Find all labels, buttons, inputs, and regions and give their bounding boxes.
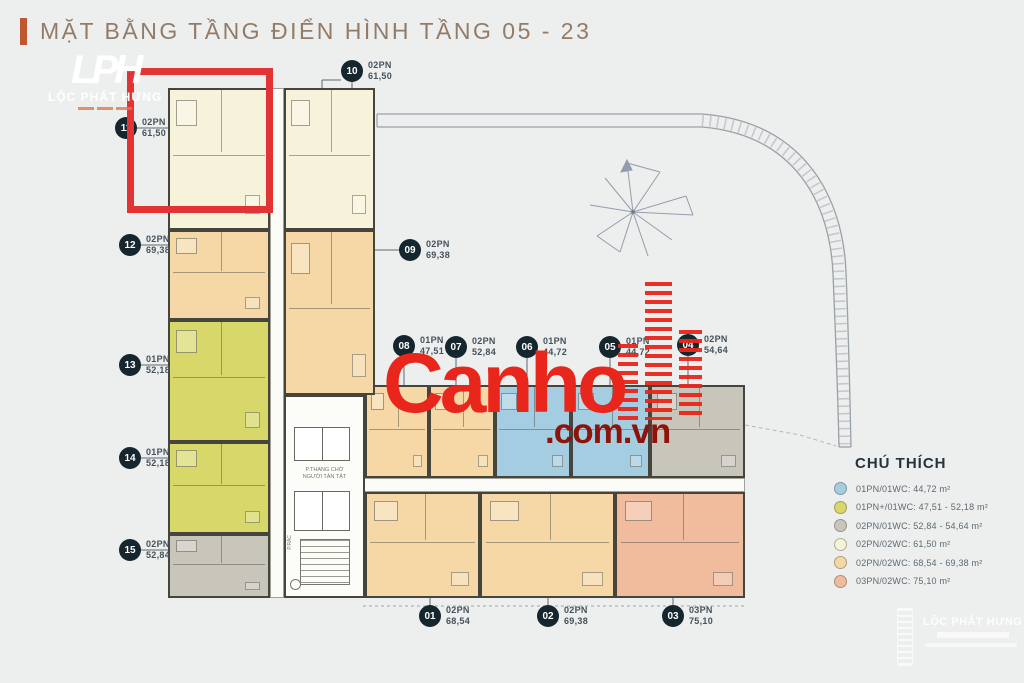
page-title: MẶT BẰNG TẦNG ĐIỂN HÌNH TẦNG 05 - 23 [40, 18, 591, 45]
unit-number-badge: 01 [419, 605, 441, 627]
unit-area: 69,38 [426, 250, 450, 261]
legend-item: 02PN/02WC: 61,50 m² [834, 538, 988, 551]
unit-label-01: 0102PN68,54 [419, 605, 470, 627]
legend-item: 02PN/02WC: 68,54 - 69,38 m² [834, 556, 988, 569]
unit-area: 69,38 [146, 245, 170, 256]
legend-swatch [834, 556, 847, 569]
legend-label: 02PN/02WC: 61,50 m² [856, 539, 950, 549]
unit-type: 01PN [146, 447, 170, 458]
legend: CHÚ THÍCH 01PN/01WC: 44,72 m²01PN+/01WC:… [834, 455, 988, 593]
legend-label: 02PN/02WC: 68,54 - 69,38 m² [856, 558, 982, 568]
unit-area: 75,10 [689, 616, 713, 627]
unit-type: 01PN [146, 354, 170, 365]
unit-number-badge: 03 [662, 605, 684, 627]
brand-subtext-bar [937, 632, 1009, 638]
legend-swatch [834, 538, 847, 551]
unit-label-02: 0202PN69,38 [537, 605, 588, 627]
compass-icon [590, 160, 693, 256]
canho-watermark-suffix: .com.vn [545, 412, 670, 452]
brand-monogram-icon: LPH [48, 52, 162, 88]
legend-label: 03PN/02WC: 75,10 m² [856, 576, 950, 586]
unit-area: 69,38 [564, 616, 588, 627]
unit-type: 02PN [146, 234, 170, 245]
unit-label-10: 1002PN61,50 [341, 60, 392, 82]
unit-number-badge: 10 [341, 60, 363, 82]
canho-building-icon [645, 282, 672, 420]
unit-label-15: 1502PN52,84 [119, 539, 170, 561]
unit-label-09: 0902PN69,38 [399, 239, 450, 261]
canho-building-icon [618, 344, 638, 420]
unit-type: 02PN [146, 539, 170, 550]
legend-label: 01PN+/01WC: 47,51 - 52,18 m² [856, 502, 988, 512]
unit-label-12: 1202PN69,38 [119, 234, 170, 256]
floor-plan-flyer: MẶT BẰNG TẦNG ĐIỂN HÌNH TẦNG 05 - 23 LPH… [0, 0, 1024, 683]
brand-logo-bottom-right: LỘC PHÁT HƯNG [897, 608, 1022, 666]
brand-name: LỘC PHÁT HƯNG [48, 90, 162, 104]
unit-label-13: 1301PN52,18 [119, 354, 170, 376]
title-accent-bar [20, 18, 27, 45]
legend-item: 03PN/02WC: 75,10 m² [834, 575, 988, 588]
legend-label: 02PN/01WC: 52,84 - 54,64 m² [856, 521, 982, 531]
unit-number-badge: 12 [119, 234, 141, 256]
unit-label-03: 0303PN75,10 [662, 605, 713, 627]
legend-swatch [834, 519, 847, 532]
unit-area: 54,64 [704, 345, 728, 356]
unit-type: 02PN [368, 60, 392, 71]
unit-number-badge: 02 [537, 605, 559, 627]
unit-area: 52,18 [146, 458, 170, 469]
unit-type: 02PN [446, 605, 470, 616]
legend-swatch [834, 501, 847, 514]
unit-type: 03PN [689, 605, 713, 616]
legend-item: 01PN+/01WC: 47,51 - 52,18 m² [834, 501, 988, 514]
unit-area: 52,84 [146, 550, 170, 561]
brand-name: LỘC PHÁT HƯNG [923, 616, 1022, 628]
page-title-row: MẶT BẰNG TẦNG ĐIỂN HÌNH TẦNG 05 - 23 [20, 18, 591, 45]
legend-item: 01PN/01WC: 44,72 m² [834, 482, 988, 495]
unit-number-badge: 09 [399, 239, 421, 261]
canho-building-icon [679, 330, 702, 420]
unit-area: 61,50 [368, 71, 392, 82]
unit-type: 02PN [564, 605, 588, 616]
legend-swatch [834, 575, 847, 588]
unit-number-badge: 15 [119, 539, 141, 561]
unit-area: 68,54 [446, 616, 470, 627]
brand-logo-top-left: LPH LỘC PHÁT HƯNG [48, 52, 162, 110]
boundary-line [377, 114, 702, 127]
legend-title: CHÚ THÍCH [855, 455, 988, 472]
brand-color-bars [48, 107, 162, 110]
unit-area: 52,18 [146, 365, 170, 376]
legend-swatch [834, 482, 847, 495]
brand-subtext-bar [925, 643, 1017, 647]
unit-number-badge: 13 [119, 354, 141, 376]
unit-label-14: 1401PN52,18 [119, 447, 170, 469]
brand-tower-icon [897, 608, 913, 666]
legend-label: 01PN/01WC: 44,72 m² [856, 484, 950, 494]
unit-type: 02PN [426, 239, 450, 250]
legend-item: 02PN/01WC: 52,84 - 54,64 m² [834, 519, 988, 532]
terrace-curve [702, 114, 851, 447]
unit-type: 02PN [704, 334, 728, 345]
unit-number-badge: 14 [119, 447, 141, 469]
